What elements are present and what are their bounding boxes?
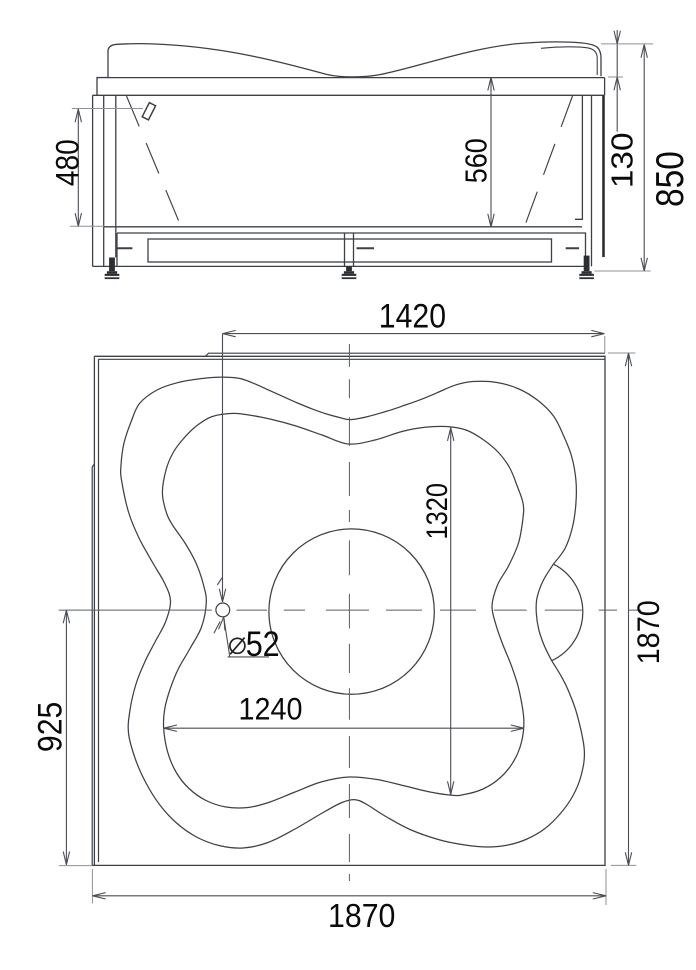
svg-text:52: 52 xyxy=(246,624,280,664)
svg-text:130: 130 xyxy=(604,133,639,189)
svg-text:1870: 1870 xyxy=(328,897,395,934)
svg-text:1870: 1870 xyxy=(631,600,666,664)
svg-text:925: 925 xyxy=(31,702,69,752)
svg-text:480: 480 xyxy=(49,139,86,186)
svg-text:1240: 1240 xyxy=(239,691,303,726)
svg-text:1420: 1420 xyxy=(379,298,446,336)
svg-text:1320: 1320 xyxy=(421,483,454,540)
svg-text:850: 850 xyxy=(649,151,692,207)
svg-text:560: 560 xyxy=(460,138,494,183)
